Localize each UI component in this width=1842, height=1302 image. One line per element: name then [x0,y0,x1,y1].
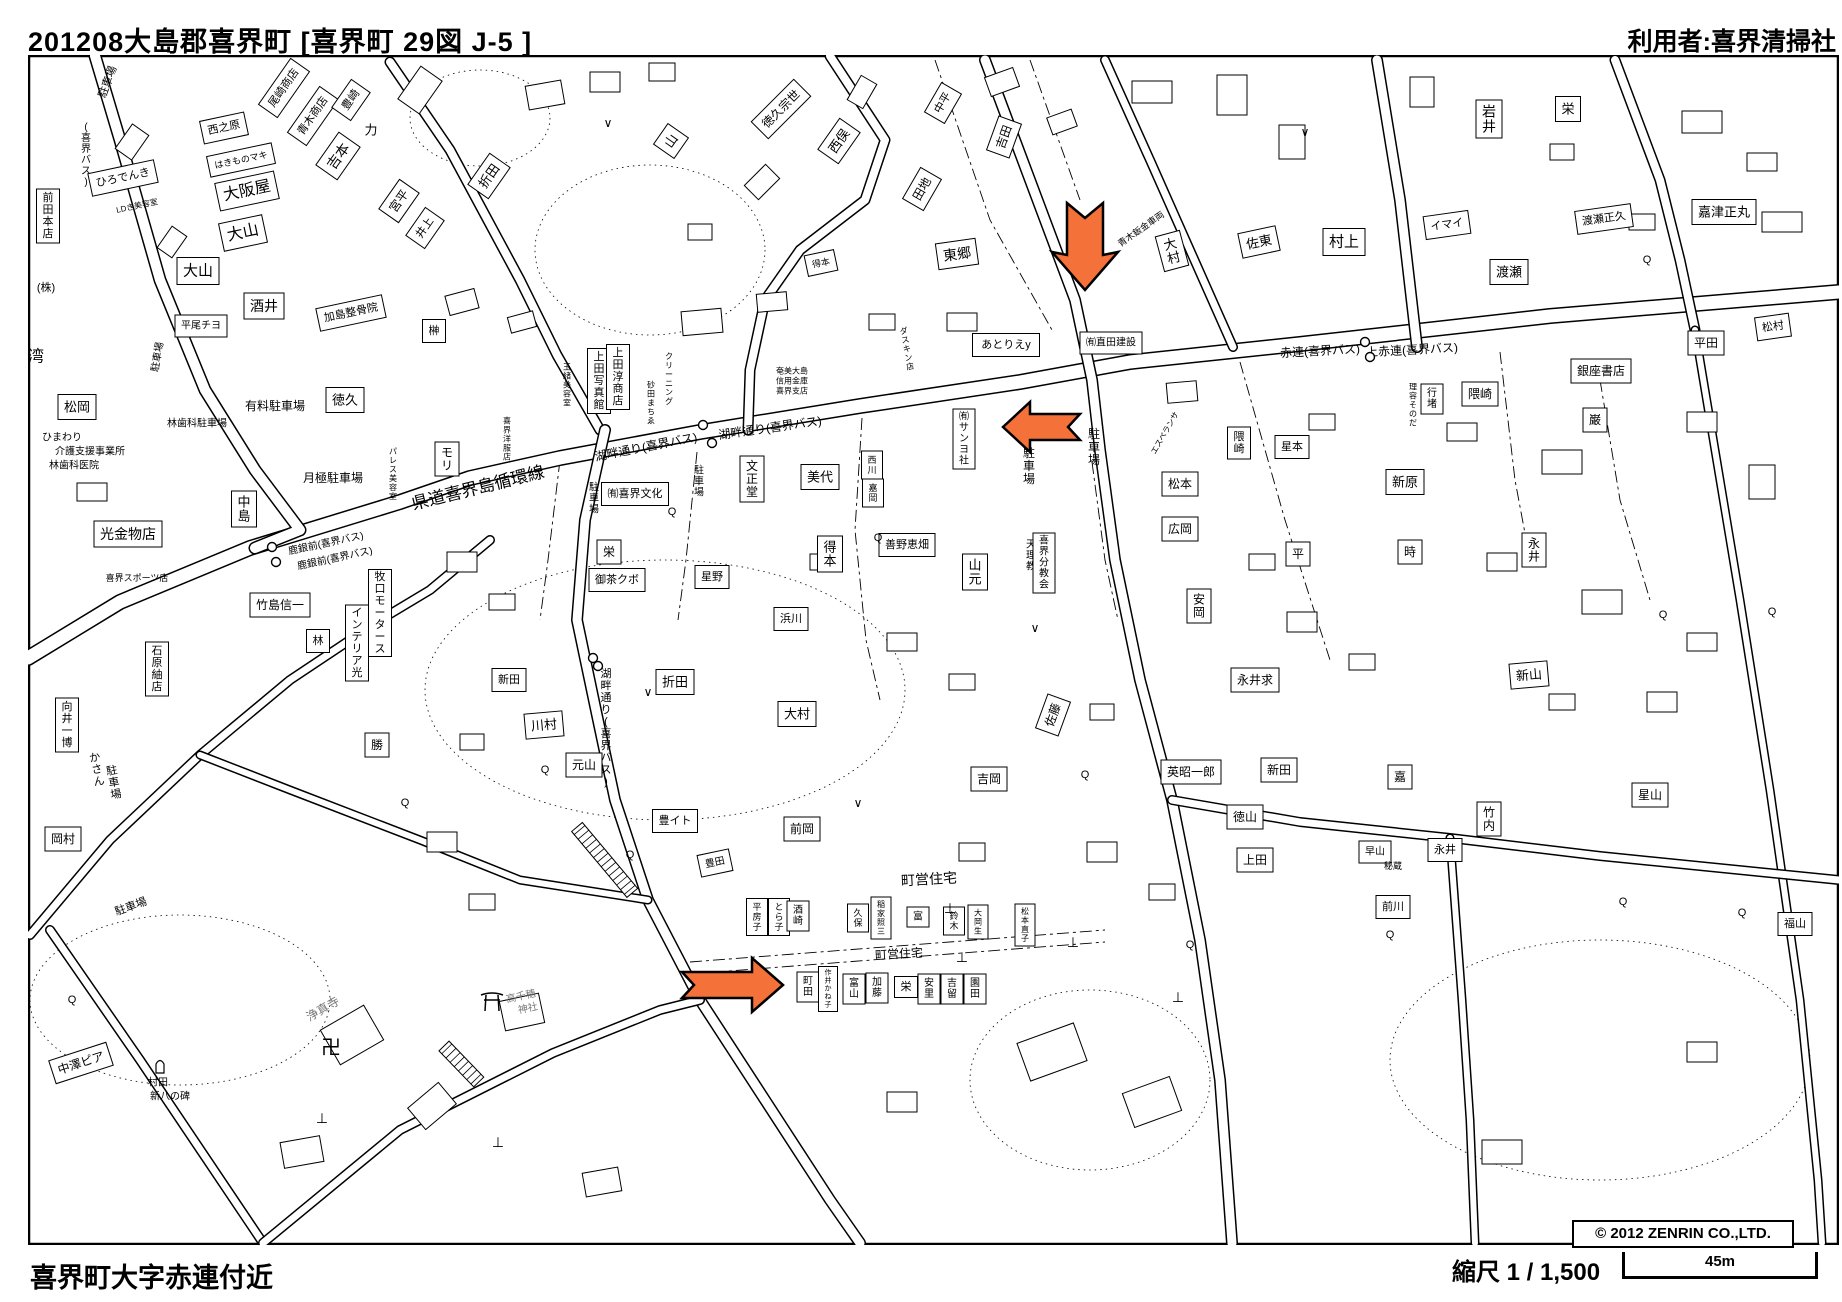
building-label-group: 時 [1398,540,1422,564]
building-label-group: 早山 [1359,841,1391,863]
building [427,832,457,852]
building-label-group: 中島 [232,491,257,527]
building-label: 折田 [662,675,688,690]
building-label-group: 有料駐車場 [245,398,305,413]
building-label-group: 理容そのだ [1409,383,1417,428]
building-label-group: 星本 [1275,436,1309,459]
building-label: 村上 [1329,234,1359,251]
building-label-group: 林歯科医院 [49,459,99,472]
building-label: 前田本店 [43,190,54,240]
building [1447,423,1477,441]
building [1090,704,1114,720]
building [1687,633,1717,651]
building-label: 駐車場 [589,481,599,516]
building-label: 新田 [1267,762,1291,777]
building-label-group: 喜界スポーツ店 [106,572,169,583]
building-label: ㈲直田建設 [1086,336,1136,349]
grave-symbol: ⊥ [1172,989,1184,1005]
building-label: 勝 [371,737,383,752]
building-label-group: 信用金庫 [776,376,808,386]
building [460,734,484,750]
building-label: 大村 [784,707,810,722]
building-label-group: 光金物店 [94,521,162,547]
building-label: 山元 [968,558,981,587]
building-label: 渡瀬 [1496,265,1522,280]
building [869,314,895,330]
building-label-group: ひまわり [42,432,82,444]
building-label: ㈲喜界文化 [608,486,663,500]
grass-symbol: ∨ [604,116,613,130]
building-label-group: 町田 [797,972,819,1002]
building-label: 平尾チヨ [181,320,221,332]
building-label-group: 平田 [1688,331,1724,355]
building-label: 大山 [183,263,213,280]
building-label: 広岡 [1168,522,1192,536]
building-label-group: 牧口モータース [369,569,392,657]
building-label-group: 竹島信一 [250,593,310,617]
building-label-group: 平房子 [747,899,768,936]
building-label-group: 永井 [1428,839,1462,862]
building-label: 新八の碑 [150,1090,190,1103]
building-label: 嘉岡 [868,482,877,503]
building-label: 浜川 [780,612,802,625]
building-label: 松本直子 [1021,906,1029,943]
building-label-group: 秘蔵 [1384,860,1402,871]
building-label-group: 吉岡 [971,767,1007,791]
building-label: 理容そのだ [1409,383,1417,428]
building [959,843,985,861]
building-label: 吉留 [947,977,957,1000]
building-label: 駐車場 [1088,426,1100,467]
grass-symbol: ∨ [1301,125,1310,139]
building [1087,842,1117,862]
building-label: 文正堂 [746,458,758,499]
building-label-group: 嘉岡 [863,479,884,507]
building-label-group: 徳久 [326,388,364,413]
building-label-group: クリーニング [665,352,673,406]
building-label: 富 [913,910,923,923]
bus-stop [594,662,603,671]
building-label-group: 新田 [492,669,526,692]
building-label: 竹島信一 [256,597,304,612]
building [1309,414,1335,430]
building-label-group: 栄 [1556,97,1581,122]
building-label-group: 嘉津正丸 [1692,200,1756,225]
building-label-group: 奄美大島 [776,366,808,376]
building-label-group: 新田 [1261,758,1297,782]
bus-stop [268,543,277,552]
building-label-group: 隈崎 [1462,382,1498,406]
building [1687,1042,1717,1062]
building-label: 隈崎 [1234,430,1245,455]
building-label: 行堵 [1427,386,1437,410]
building-label-group: 月極駐車場 [303,470,363,485]
building-label-group: 福山 [1778,913,1812,936]
building-label: 上田淳商店 [613,346,624,407]
building-label: 西川 [867,455,876,475]
building-label: 久保 [853,907,862,928]
building-label: 松岡 [64,400,90,415]
area-label: 喜界町大字赤連付近 [30,1256,273,1295]
building-label-group: 村上 [1323,229,1365,256]
building-label: 大岡生 [974,908,982,936]
building [947,313,977,331]
building-label: 星野 [701,570,723,583]
building-label-group: 銀座書店 [1571,359,1631,383]
building-label: 御茶クボ [595,572,639,586]
building-label: 喜界支店 [776,386,808,396]
building-label-group: 行堵 [1421,384,1443,414]
building-label: 嘉 [1394,770,1406,784]
building-label-group: 富山 [843,974,865,1004]
building-label: 栄 [1561,102,1574,117]
building-label: インテリア光 [352,607,363,679]
scale-label: 縮尺 1 / 1,500 [1452,1252,1600,1287]
building-label: 隈崎 [1468,387,1492,401]
map-container: 駐車場(喜界バス)尾崎商店青木商店豊崎吉本力西之原はきものマキ大阪屋大山大山酒井… [28,55,1839,1245]
building [756,292,787,313]
building [1217,75,1247,115]
building-label-group: 介護支援事業所 [55,445,125,458]
grave-symbol: ⊥ [492,1134,504,1150]
building-label-group: ㈲サンヨ社 [953,409,975,469]
building-label-group: 川村 [524,711,564,739]
building-label-group: 榊 [423,320,446,343]
building-label-group: 栄 [895,977,918,998]
building-label: 早山 [1365,846,1385,858]
grave-symbol: ⊥ [316,1110,328,1126]
grave-symbol: ⊥ [1067,934,1079,950]
tree-symbol: Q [541,764,550,776]
building-label: 湾 [28,348,44,366]
building-label-group: 駐車場 [694,464,704,499]
tree-symbol: Q [1659,609,1668,621]
building-label-group: 星野 [695,566,729,589]
building-label: 安里 [924,976,934,1000]
building-label: 月極駐車場 [303,470,363,485]
building-label-group: 安里 [918,974,940,1004]
building-label: モリ [441,446,453,473]
building-label: とら子 [774,902,783,932]
building [1749,465,1775,499]
building-label-group: 林 [307,630,330,653]
building-label-group: 玉緒美容室 [563,363,571,408]
grave-symbol: ⊥ [956,949,968,965]
building-label-group: 徳山 [1227,805,1263,829]
building-label: 上田写真館 [594,350,605,411]
building-label-group: 元山 [566,753,602,777]
building-label-group: とら子 [769,899,790,936]
building [688,224,712,240]
building-label-group: 駐車場 [1088,426,1100,467]
building-label-group: 酒崎 [787,901,809,931]
building-label-group: 町営住宅 [901,870,958,889]
building [649,63,675,81]
building-label: ひまわり [42,432,82,444]
building-label: 時 [1404,545,1416,559]
building-label-group: 竹内 [1477,802,1501,836]
building-label-group: 町営住宅 [875,945,924,962]
building-label-group: 永井 [1522,533,1546,567]
building [1349,654,1375,670]
building-label: 林歯科駐車場 [167,417,227,430]
building [1647,692,1677,712]
building-label-group: 豊イト [653,810,698,833]
building-label: 永井 [1434,842,1456,856]
building-label: 向井一博 [62,699,73,749]
building-label: 新原 [1392,475,1418,490]
building-label-group: 浜川 [774,608,808,631]
building [1762,212,1802,232]
building-label: 秘蔵 [1384,860,1402,871]
tree-symbol: Q [1619,896,1628,908]
building-label: クリーニング [665,352,673,406]
building-label-group: 前川 [1376,896,1410,919]
copyright-notice: © 2012 ZENRIN CO.,LTD. [1572,1220,1794,1248]
building-label-group: 富 [907,907,929,927]
building-label-group: 善野恵畑 [879,534,935,557]
building-label: 駐車場 [694,464,704,499]
tree-symbol: Q [1768,606,1777,618]
building-label: 酒井 [250,298,278,314]
building-label: 町田 [803,976,813,998]
grass-symbol: ∨ [644,685,653,699]
monument-symbol [156,1061,164,1074]
building-label-group: 山元 [963,554,988,590]
tree-symbol: Q [874,532,883,544]
building-label: (株) [37,280,55,294]
grass-symbol: ∨ [1031,621,1040,635]
building-label: 永井 [1528,537,1540,564]
building-label: 新山 [1515,666,1542,683]
building-label-group: (株) [37,280,55,294]
building-label: 酒崎 [793,904,803,927]
building [1550,144,1574,160]
building-label: 巌 [1589,413,1601,427]
tree-symbol: Q [626,849,635,861]
building-label: 星本 [1281,439,1303,453]
building [77,483,107,501]
building-label-group: 前岡 [784,817,820,841]
building-label-group: 平尾チヨ [175,315,227,337]
building [1149,884,1175,900]
building-label-group: 松本 [1162,472,1198,496]
building-label-group: 得本 [818,536,843,572]
building-label-group: 湾 [28,348,44,366]
building-label: 有料駐車場 [245,398,305,413]
building-label-group: ㈲喜界文化 [602,483,669,506]
building-label-group: 岡村 [45,827,81,851]
building-label-group: 駐車場 [589,481,599,516]
building-label: 砂田まちゑ [647,380,655,426]
building-label: 平 [1292,547,1304,561]
building-label: 岡村 [51,832,75,846]
building-label-group: 村田 [148,1076,168,1089]
bus-stop [1361,338,1370,347]
bus-stop [708,439,717,448]
building [1542,450,1582,474]
building-label-group: 広岡 [1162,517,1198,541]
building-label-group: 文正堂 [740,456,764,502]
bus-stop [272,558,281,567]
building-label-group: 大村 [778,702,816,727]
grass-symbol: ∨ [854,796,863,810]
building-label-group: 作井かね子 [819,967,838,1012]
building-label: 富山 [849,976,859,1000]
building-label-group: インテリア光 [346,605,369,681]
building-label-group: 園田 [964,974,986,1004]
building-label: あとりえy [981,338,1031,351]
building-label-group: 英昭一郎 [1161,760,1221,784]
building-label: 町営住宅 [901,870,958,889]
building [1682,111,1722,133]
building [1687,412,1717,432]
building-label-group: 力 [364,123,377,138]
building-label-group: ㈲直田建設 [1080,332,1142,354]
building [1166,381,1198,404]
building-label: 光金物店 [100,526,156,542]
building-label: 善野恵畑 [885,537,929,551]
building-label-group: 向井一博 [56,698,79,752]
building-label: 平房子 [752,902,761,932]
building-label: 林歯科医院 [49,459,99,472]
building-label-group: 西川 [862,451,883,479]
tree-symbol: Q [1386,929,1395,941]
building-label: 栄 [901,979,912,993]
building-label: 作井かね子 [825,968,832,1009]
building-label-group: 大岡生 [968,905,988,939]
building-label: 力 [364,123,377,138]
building-label-group: 石原紬店 [146,642,169,696]
building [1747,153,1777,171]
building-label: 美代 [807,470,833,485]
building-label: 安岡 [1193,592,1205,620]
building-label-group: モリ [435,442,459,476]
building-label: 林 [313,633,324,647]
building-label-group: 栄 [597,540,621,564]
building-label: 加藤 [872,976,882,999]
building-label-group: 喜界洋服店 [503,416,511,462]
building-label-group: 永井求 [1231,668,1279,692]
building-label: 銀座書店 [1577,363,1625,378]
building-label: 喜界分教会 [1039,534,1049,591]
building [1582,590,1622,614]
building-label-group: 上田 [1237,848,1273,872]
building-label: 徳久 [332,393,358,408]
building-label: 竹内 [1483,806,1495,833]
building-label-group: 折田 [656,670,694,695]
building-label: 玉緒美容室 [563,363,571,408]
building [1482,1140,1522,1164]
building-label: ㈲サンヨ社 [959,411,969,467]
building-label: 福山 [1784,916,1806,930]
building-label-group: 御茶クボ [589,569,645,592]
building-label-group: 勝 [365,733,389,757]
building [1410,77,1434,107]
building-label: 信用金庫 [776,376,808,386]
page-title: 201208大島郡喜界町 [喜界町 29図 J-5 ] [28,20,532,59]
building-label-group: 新山 [1509,661,1549,689]
tree-symbol: Q [1643,254,1652,266]
building-label: 徳山 [1233,809,1257,824]
tree-symbol: Q [1186,939,1195,951]
building-label: 得本 [823,540,836,569]
building-label: 前岡 [790,821,814,836]
building-label-group: 酒井 [244,293,284,319]
building-label-group: 吉留 [941,974,963,1004]
building-label: 吉岡 [977,772,1001,786]
building-label-group: 松本直子 [1015,904,1035,946]
building-label-group: 喜界支店 [776,386,808,396]
building-label: 喜界洋服店 [503,416,511,462]
temple-symbol: 卍 [321,1037,341,1059]
building-label-group: 松岡 [58,395,96,420]
building [1549,694,1575,710]
building-label: 前川 [1382,899,1404,913]
map-canvas: 駐車場(喜界バス)尾崎商店青木商店豊崎吉本力西之原はきものマキ大阪屋大山大山酒井… [28,55,1839,1245]
building-label-group: パレス美容室 [389,447,397,501]
bus-stop [1366,353,1375,362]
building-label: 松本 [1168,477,1192,491]
building-label-group: 美代 [801,465,839,490]
building-label-group: 林歯科駐車場 [167,417,227,430]
grave-symbol: ⊥ [944,900,956,916]
building-label-group: 上田淳商店 [607,345,630,410]
building [887,633,917,651]
building-label: 豊イト [659,814,692,827]
building-label: 栄 [603,545,615,559]
building [1487,553,1517,571]
tree-symbol: Q [68,994,77,1006]
building-label-group: 砂田まちゑ [647,380,655,426]
building-label: 園田 [970,977,980,1000]
building-label: 上田 [1243,853,1267,867]
tree-symbol: Q [668,506,677,518]
building-label: 石原紬店 [152,645,163,693]
building-label: 介護支援事業所 [55,445,125,458]
building-label-group: 隈崎 [1228,427,1251,459]
building [681,308,723,335]
building-label-group: 嘉 [1388,765,1412,789]
user-label: 利用者:喜界清掃社 [1628,22,1836,58]
building-label: 喜界スポーツ店 [106,572,169,583]
building-label-group: 平 [1286,542,1310,566]
building-label: 元山 [572,758,596,772]
tree-symbol: Q [1738,907,1747,919]
building-label-group: 喜界分教会 [1033,533,1055,593]
building-label: 英昭一郎 [1167,765,1215,779]
bus-stop [699,421,708,430]
building-label: 永井求 [1237,673,1273,687]
building-label-group: 久保 [848,904,869,932]
building-label: 星山 [1638,788,1662,802]
building [447,552,477,572]
building-label-group: 巌 [1583,408,1607,432]
building-label-group: 稲家照三 [871,897,891,939]
building [1249,554,1275,570]
building-label: 奄美大島 [776,366,808,376]
building-label-group: 新八の碑 [150,1090,190,1103]
building [469,894,495,910]
building-label: 新田 [498,672,520,686]
building [887,1092,917,1112]
tree-symbol: Q [1081,769,1090,781]
scale-bar: 45m [1622,1252,1818,1279]
building-label-group: あとりえy [973,334,1040,357]
building-label-group: 新原 [1386,470,1424,495]
building-label-group: 渡瀬 [1490,260,1528,285]
building [590,72,620,92]
